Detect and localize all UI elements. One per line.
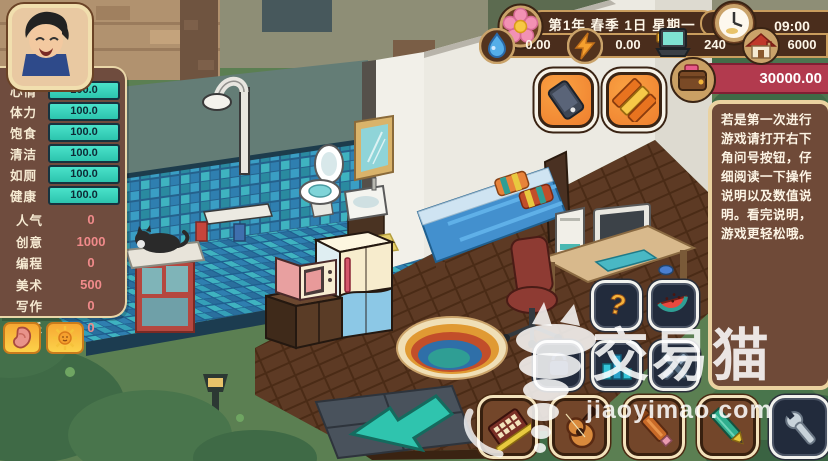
money-bar: 30000.00	[703, 63, 828, 94]
stats-panel: 心情 100.0 体力 100.0 饱食 100.0 清洁 100.0 如厕 1…	[0, 66, 127, 318]
guitar-button[interactable]	[552, 398, 607, 456]
question-mark-icon: ?	[599, 288, 635, 324]
microwave[interactable]	[266, 258, 342, 348]
phone-button[interactable]	[538, 72, 594, 128]
player-avatar[interactable]	[8, 4, 92, 90]
money-value: 30000.00	[759, 70, 822, 87]
stat-label: 如厕	[10, 165, 48, 184]
skill-row-writing: 写作 0	[0, 295, 125, 317]
computer-icon	[652, 26, 692, 60]
wrench-icon	[778, 404, 822, 450]
watermelon-icon	[655, 287, 693, 325]
stat-label: 饱食	[10, 123, 48, 142]
skill-row-programming: 编程 0	[0, 252, 125, 274]
stat-row-bladder: 如厕 100.0	[0, 164, 125, 185]
mirror[interactable]	[355, 116, 393, 180]
bag-icon	[542, 349, 576, 383]
tutorial-notice-panel: 若是第一次进行游戏请打开右下角问号按钮，仔细阅读一下操作说明以及数值说明。看完说…	[708, 100, 828, 390]
stat-label: 健康	[10, 186, 48, 205]
unknown-button[interactable]	[536, 343, 581, 388]
water-drop-icon	[479, 28, 515, 64]
svg-text:?: ?	[605, 288, 628, 321]
avatar-portrait	[12, 8, 80, 78]
phone-icon	[544, 78, 588, 122]
keyboard-pencil-icon	[485, 403, 531, 451]
cards-icon	[612, 78, 656, 122]
stat-row-hunger: 饱食 100.0	[0, 122, 125, 143]
guitar-icon	[557, 403, 603, 451]
skill-row-art: 美术 500	[0, 274, 125, 296]
wallet-icon	[670, 57, 716, 103]
stat-label: 体力	[10, 102, 48, 121]
power-value: 0.00	[602, 37, 654, 52]
stomach-icon	[11, 326, 33, 350]
lightning-icon	[567, 28, 603, 64]
sun-button[interactable]	[46, 322, 84, 354]
watermelon-button[interactable]	[651, 283, 696, 328]
pencil-icon	[705, 403, 751, 451]
sun-icon	[52, 325, 78, 351]
game-screen: 心情 100.0 体力 100.0 饱食 100.0 清洁 100.0 如厕 1…	[0, 0, 828, 461]
marker-icon	[631, 403, 677, 451]
window-ledge	[126, 242, 204, 332]
stat-row-health: 健康 100.0	[0, 185, 125, 206]
keyboard-button[interactable]	[480, 398, 535, 456]
hunger-bar: 100.0	[48, 123, 120, 142]
pencil-button[interactable]	[700, 398, 756, 456]
stomach-button[interactable]	[3, 322, 41, 354]
hygiene-bar: 100.0	[48, 144, 120, 163]
computer-value: 240	[692, 37, 738, 52]
energy-bar: 100.0	[48, 102, 120, 121]
skill-row-creativity: 创意 1000	[0, 231, 125, 253]
house-icon	[742, 27, 780, 65]
health-bar: 100.0	[48, 186, 120, 205]
tools-button[interactable]	[652, 343, 697, 388]
bar-chart-icon	[600, 349, 634, 383]
wrench-button[interactable]	[772, 398, 827, 456]
stat-row-energy: 体力 100.0	[0, 101, 125, 122]
bladder-bar: 100.0	[48, 165, 120, 184]
water-value: 0.00	[512, 37, 564, 52]
crossed-tools-icon	[657, 348, 693, 384]
rug	[397, 317, 507, 379]
cards-button[interactable]	[606, 72, 662, 128]
marker-button[interactable]	[626, 398, 682, 456]
stat-row-hygiene: 清洁 100.0	[0, 143, 125, 164]
help-button[interactable]: ?	[594, 283, 639, 328]
house-value: 6000	[778, 37, 826, 52]
notice-text: 若是第一次进行游戏请打开右下角问号按钮，仔细阅读一下操作说明以及数值说明。看完说…	[721, 111, 822, 244]
stat-label: 清洁	[10, 144, 48, 163]
stats-chart-button[interactable]	[594, 343, 639, 388]
skill-row-popularity: 人气 0	[0, 209, 125, 231]
